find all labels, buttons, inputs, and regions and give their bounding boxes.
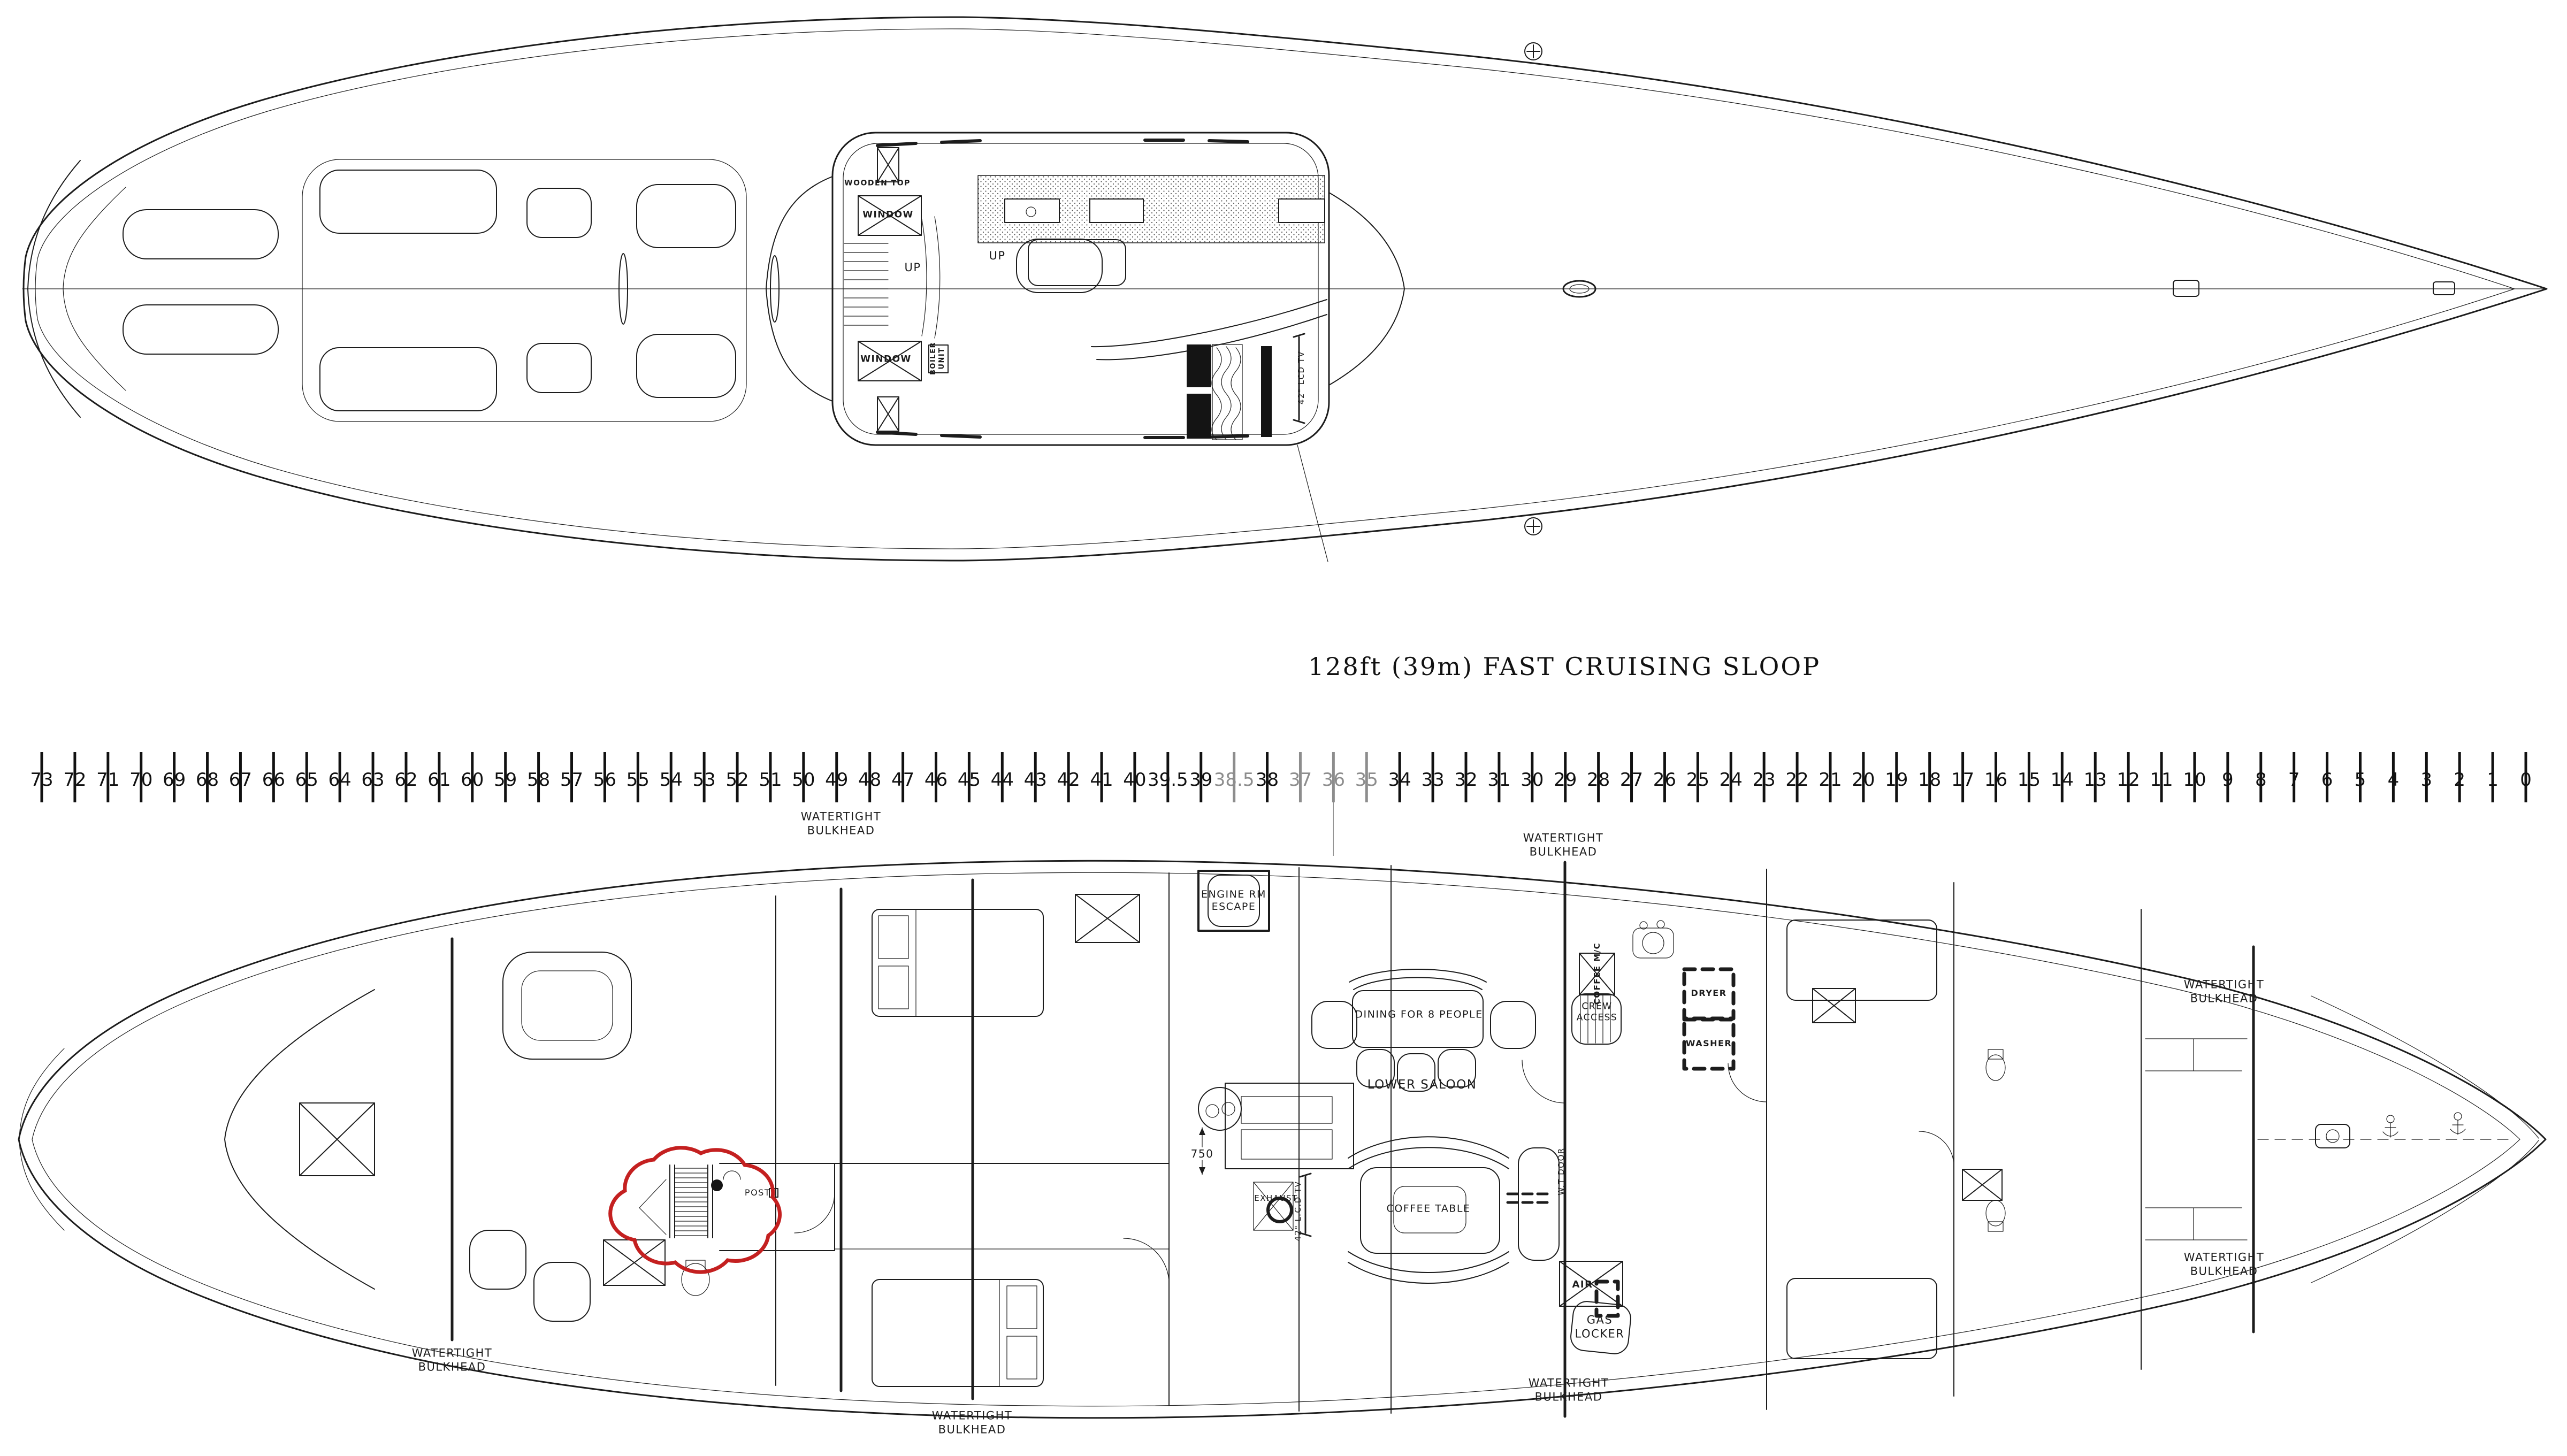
station-label: 6 [2321,769,2333,791]
label-boiler-unit: BOILER UNIT [929,342,946,375]
deck-plan [22,17,2547,562]
deck-hatch-crossed [858,148,921,431]
station-label: 15 [2018,769,2041,791]
station-label: 48 [858,769,881,791]
station-label: 24 [1720,769,1743,791]
liferaft-crossed-box [300,1103,375,1176]
station-label: 50 [792,769,815,791]
station-label: 45 [958,769,981,791]
label-wt-door: W.T DOOR [1556,1147,1566,1195]
watertight-door [1508,1194,1552,1202]
station-label: 42 [1057,769,1080,791]
station-label: 7 [2288,769,2300,791]
revision-cloud-annotation [610,1148,780,1272]
label-dryer: DRYER [1691,988,1726,999]
label-wooden-top: WOODEN TOP [844,179,911,188]
station-label: 19 [1885,769,1908,791]
station-label: 39.5 [1148,769,1188,791]
station-label: 5 [2355,769,2366,791]
label-lcd-tv: 42" LCD TV [1296,351,1306,404]
station-label: 27 [1620,769,1643,791]
station-label: 22 [1785,769,1808,791]
label-gas-locker: GAS LOCKER [1575,1313,1625,1340]
station-label: 29 [1554,769,1577,791]
label-engine-room-escape: ENGINE RM ESCAPE [1201,888,1266,913]
station-label: 43 [1024,769,1047,791]
station-label: 12 [2117,769,2140,791]
exhaust-box [1254,1182,1293,1230]
station-label: 46 [925,769,948,791]
engine-block [1225,1083,1354,1169]
station-label: 18 [1918,769,1941,791]
drawing-sheet: 128ft (39m) FAST CRUISING SLOOP WATERTIG… [0,0,2567,1456]
station-label: 70 [129,769,152,791]
station-ruler [42,752,2526,856]
dining-table [1312,969,1535,1091]
drawing-title: 128ft (39m) FAST CRUISING SLOOP [1308,652,1821,681]
station-label: 54 [660,769,683,791]
label-watertight-bulkhead: WATERTIGHT BULKHEAD [412,1346,492,1374]
station-label: 68 [196,769,219,791]
station-label: 56 [593,769,616,791]
interior-plan [19,861,2546,1418]
station-label: 63 [361,769,384,791]
label-coffee-table: COFFEE TABLE [1387,1202,1471,1215]
label-watertight-bulkhead: WATERTIGHT BULKHEAD [2184,978,2264,1005]
label-washer: WASHER [1686,1038,1732,1049]
station-label: 67 [229,769,252,791]
station-label: 55 [627,769,650,791]
station-label: 38 [1256,769,1279,791]
station-label: 0 [2520,769,2532,791]
deck-saloon-table [1028,240,1126,286]
bow-fitting [2433,282,2455,295]
station-label: 31 [1487,769,1510,791]
label-lcd-tv: 42" L.C.D TV [1293,1181,1303,1242]
station-label: 59 [494,769,517,791]
crossed-box [1075,894,1140,942]
station-label: 23 [1753,769,1776,791]
label-window: WINDOW [860,354,912,365]
station-label: 4 [2388,769,2400,791]
station-label: 14 [2051,769,2074,791]
station-label: 39 [1189,769,1212,791]
station-label: 61 [427,769,450,791]
station-label: 3 [2420,769,2432,791]
label-dining: DINING FOR 8 PEOPLE [1355,1008,1483,1021]
station-label: 10 [2183,769,2206,791]
station-label: 65 [295,769,318,791]
deck-hatch [2173,280,2199,296]
station-label: 26 [1653,769,1676,791]
station-label: 53 [692,769,715,791]
label-watertight-bulkhead: WATERTIGHT BULKHEAD [801,810,881,837]
station-label: 11 [2150,769,2173,791]
label-up: UP [989,249,1005,263]
label-watertight-bulkhead: WATERTIGHT BULKHEAD [1523,831,1603,859]
label-dimension-750: 750 [1189,1147,1216,1160]
label-air: AIR [1572,1279,1593,1291]
berth [1787,920,1937,1359]
station-label: 13 [2084,769,2107,791]
station-label: 35 [1355,769,1378,791]
station-label: 64 [328,769,352,791]
station-label: 57 [560,769,583,791]
station-label: 34 [1388,769,1411,791]
label-up: UP [904,261,921,275]
interior-hull-outline [19,861,2546,1418]
label-watertight-bulkhead: WATERTIGHT BULKHEAD [1529,1376,1609,1404]
label-crew-access: CREW ACCESS [1577,1001,1617,1023]
station-label: 21 [1819,769,1842,791]
crossed-box [1813,988,2002,1200]
label-post: POST [745,1187,770,1198]
drawing-canvas [0,0,2567,1456]
station-label: 2 [2454,769,2465,791]
station-label: 62 [394,769,417,791]
toilet-icon [682,1049,2005,1296]
station-label: 25 [1686,769,1709,791]
label-window: WINDOW [862,210,914,221]
post-dot [711,1179,723,1191]
station-label: 49 [825,769,848,791]
station-label: 47 [891,769,914,791]
station-label: 20 [1852,769,1875,791]
station-label: 9 [2222,769,2234,791]
station-label: 41 [1090,769,1113,791]
station-label: 32 [1454,769,1477,791]
station-label: 17 [1951,769,1974,791]
label-exhaust: EXHAUST [1254,1193,1297,1203]
berth [872,909,1043,1386]
station-label: 73 [30,769,53,791]
label-watertight-bulkhead: WATERTIGHT BULKHEAD [2184,1251,2264,1278]
anchor-icon [2383,1113,2465,1137]
station-label: 37 [1289,769,1312,791]
label-lower-saloon: LOWER SALOON [1367,1077,1477,1092]
station-label: 33 [1421,769,1444,791]
station-label: 52 [725,769,748,791]
station-label: 71 [96,769,119,791]
label-coffee-machine: COFFEE M/C [1592,942,1602,1005]
companionway-stairs [639,1165,723,1238]
station-label: 40 [1123,769,1146,791]
station-label: 1 [2487,769,2499,791]
windlass [2316,1124,2350,1148]
watertight-bulkhead-line [452,862,2253,1416]
station-label: 58 [527,769,550,791]
station-label: 72 [63,769,86,791]
station-label: 28 [1587,769,1610,791]
station-label: 36 [1322,769,1345,791]
station-label: 66 [262,769,285,791]
label-watertight-bulkhead: WATERTIGHT BULKHEAD [932,1409,1012,1436]
station-label: 16 [1984,769,2007,791]
station-label: 38.5 [1214,769,1255,791]
galley-sink [1633,921,1674,958]
station-label: 8 [2255,769,2267,791]
station-label: 51 [759,769,782,791]
station-label: 60 [461,769,484,791]
station-label: 44 [991,769,1014,791]
station-label: 69 [163,769,186,791]
station-label: 30 [1521,769,1544,791]
